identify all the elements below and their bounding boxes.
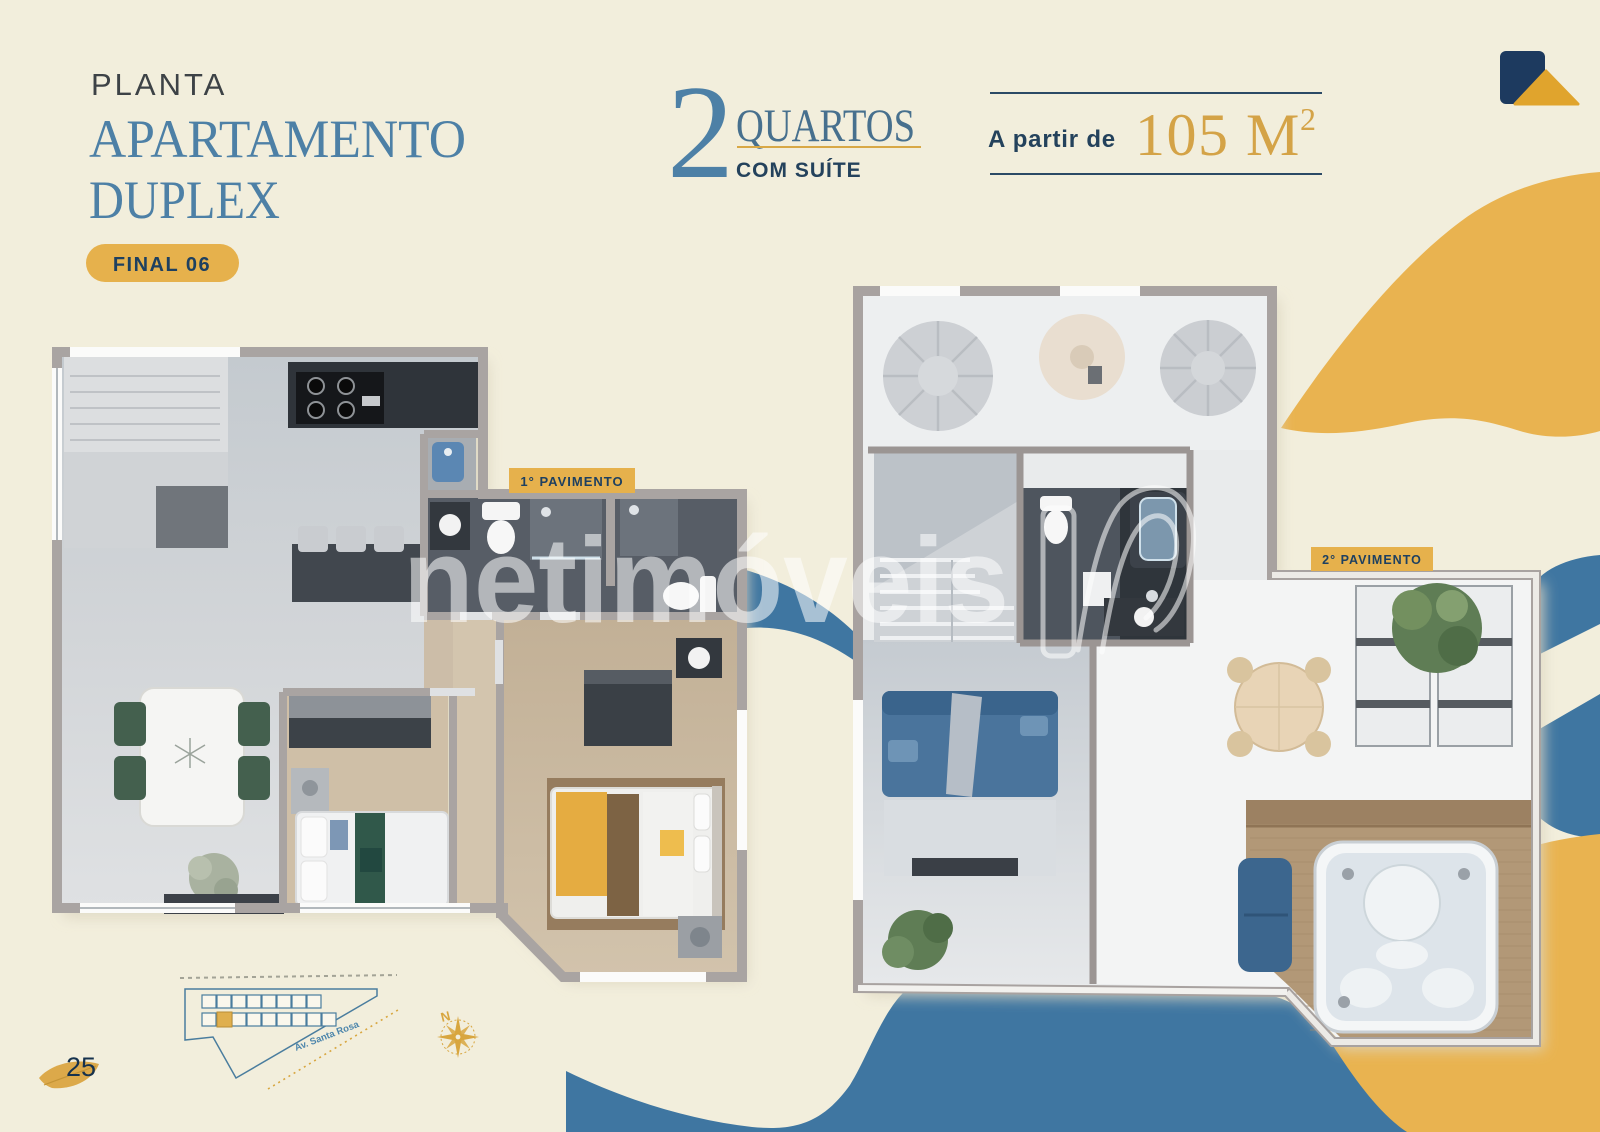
svg-text:APARTAMENTO: APARTAMENTO (89, 109, 466, 169)
svg-text:COM SUÍTE: COM SUÍTE (736, 159, 862, 182)
svg-text:2: 2 (667, 58, 734, 206)
svg-text:netimóveis: netimóveis (403, 512, 1009, 648)
svg-text:FINAL 06: FINAL 06 (113, 254, 211, 276)
svg-text:PLANTA: PLANTA (91, 67, 227, 102)
svg-text:2° PAVIMENTO: 2° PAVIMENTO (1322, 553, 1422, 567)
svg-text:105 M: 105 M (1135, 102, 1301, 168)
svg-text:DUPLEX: DUPLEX (89, 170, 280, 230)
svg-text:25: 25 (66, 1052, 96, 1082)
svg-text:A partir de: A partir de (988, 126, 1116, 153)
svg-text:2: 2 (1300, 101, 1316, 137)
svg-text:1° PAVIMENTO: 1° PAVIMENTO (520, 474, 623, 489)
svg-text:QUARTOS: QUARTOS (736, 100, 915, 152)
